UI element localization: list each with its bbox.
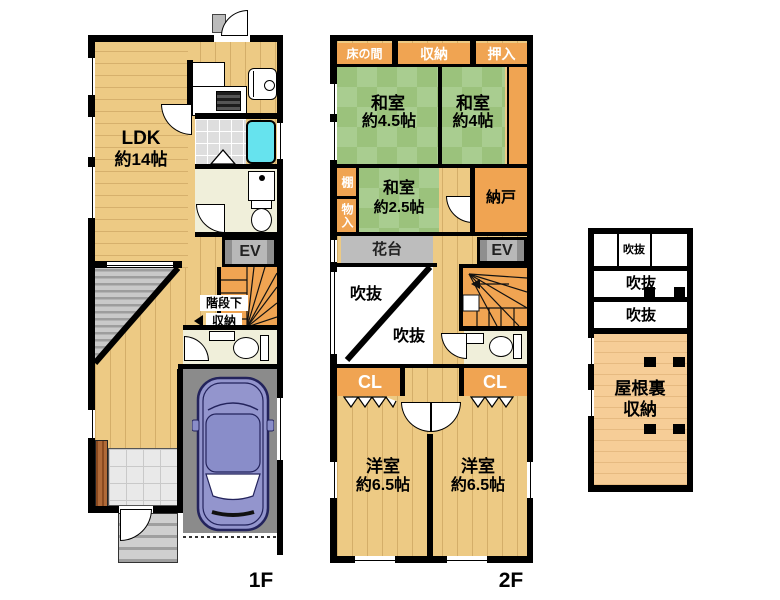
washitsu-2-5-name: 和室 xyxy=(363,180,435,198)
attic-void-mid-label: 吹抜 xyxy=(612,274,670,292)
garage-side-opening xyxy=(277,398,283,460)
pillar xyxy=(644,357,656,367)
yoshitsu-left-name: 洋室 xyxy=(351,456,415,476)
elevator-label: EV xyxy=(228,240,272,264)
wall xyxy=(88,35,283,42)
shelf-label: 棚 xyxy=(339,171,355,193)
washitsu-4-size: 約4帖 xyxy=(434,113,512,131)
pillar xyxy=(644,424,656,434)
oshiire-label: 押入 xyxy=(476,44,527,64)
yoshitsu-left-size: 約6.5帖 xyxy=(342,477,424,495)
yoshitsu-right-size: 約6.5帖 xyxy=(437,477,519,495)
window xyxy=(447,556,487,563)
top-closet-label: 収納 xyxy=(398,44,470,64)
washbasin-icon xyxy=(248,171,275,201)
closet-left-label: CL xyxy=(353,369,387,395)
pillar xyxy=(673,424,685,434)
washitsu-4-5-name: 和室 xyxy=(352,93,424,113)
shoe-cabinet xyxy=(95,440,108,507)
attic-void-bottom-label: 吹抜 xyxy=(612,306,670,324)
wall xyxy=(400,368,405,396)
washitsu-2-5-size: 約2.5帖 xyxy=(357,199,441,216)
washing-machine-icon xyxy=(248,68,277,100)
wall xyxy=(588,228,693,234)
garage-shutter-line xyxy=(183,533,277,541)
toilet-tank-icon xyxy=(513,334,522,359)
toilet-bowl-icon xyxy=(233,337,259,359)
wall xyxy=(330,35,533,41)
floor-1f-label: 1F xyxy=(238,568,284,592)
window xyxy=(277,123,283,159)
tokonoma-label: 床の間 xyxy=(337,45,392,63)
car-icon xyxy=(192,374,274,534)
pillar xyxy=(673,357,685,367)
wall xyxy=(277,35,283,555)
wall xyxy=(594,266,687,271)
wall xyxy=(459,368,464,396)
entry-tile-floor xyxy=(108,448,178,506)
small-sink-icon xyxy=(466,333,484,344)
window xyxy=(88,167,95,218)
pillar xyxy=(674,287,685,297)
ldk-size-label: 約14帖 xyxy=(101,149,181,169)
window xyxy=(355,556,395,563)
bathtub-icon xyxy=(246,120,276,164)
back-door-opening xyxy=(214,35,250,42)
elevator-2f-label: EV xyxy=(481,239,523,262)
attic-void-top-label: 吹抜 xyxy=(618,242,650,258)
window xyxy=(330,122,337,160)
side-storage-label: 物入 xyxy=(339,200,355,231)
attic-storage-label-1: 屋根裏 xyxy=(606,378,674,398)
wall xyxy=(588,485,693,492)
window xyxy=(331,272,337,354)
flower-stand-label: 花台 xyxy=(357,240,417,258)
ldk-room-label: LDK xyxy=(101,127,181,149)
closet-left-doors-icon xyxy=(342,396,398,408)
void-diagonal-wall xyxy=(337,267,433,364)
understairs-storage-label-1: 階段下 xyxy=(200,295,248,311)
pillar xyxy=(644,287,655,297)
closet-right-label: CL xyxy=(478,369,512,395)
window xyxy=(88,117,95,157)
washitsu-4-5-size: 約4.5帖 xyxy=(344,113,434,131)
window xyxy=(330,462,337,498)
window xyxy=(330,84,337,114)
toilet-bowl-icon xyxy=(251,208,272,232)
closet-right-doors-icon xyxy=(469,396,521,408)
washitsu-4-name: 和室 xyxy=(437,93,509,113)
window xyxy=(588,338,594,364)
floor-plan-canvas: EV 階段下 収納 xyxy=(0,0,780,600)
wall xyxy=(427,434,433,556)
bath-folding-door-icon xyxy=(210,149,236,165)
stove-icon xyxy=(216,91,241,111)
small-sink-icon xyxy=(209,331,235,341)
floor-2f-label: 2F xyxy=(488,568,534,592)
window xyxy=(331,240,337,262)
wall xyxy=(337,196,356,199)
attic-void-top-divider xyxy=(650,234,652,266)
window xyxy=(88,58,95,95)
yoshitsu-right-name: 洋室 xyxy=(446,456,510,476)
void-upper-label: 吹抜 xyxy=(341,286,391,304)
window xyxy=(88,410,95,438)
wall xyxy=(88,35,95,513)
void-lower-label: 吹抜 xyxy=(384,328,434,346)
stairs-2f xyxy=(463,268,527,326)
wall xyxy=(594,297,687,302)
nando-label: 納戸 xyxy=(477,188,525,206)
toilet-tank-icon xyxy=(260,335,269,361)
window xyxy=(527,462,533,498)
attic-storage-label-2: 収納 xyxy=(606,399,674,419)
window xyxy=(588,390,594,416)
toilet-bowl-icon xyxy=(489,336,513,357)
wall xyxy=(687,228,693,492)
terrace-hatched xyxy=(95,262,180,366)
